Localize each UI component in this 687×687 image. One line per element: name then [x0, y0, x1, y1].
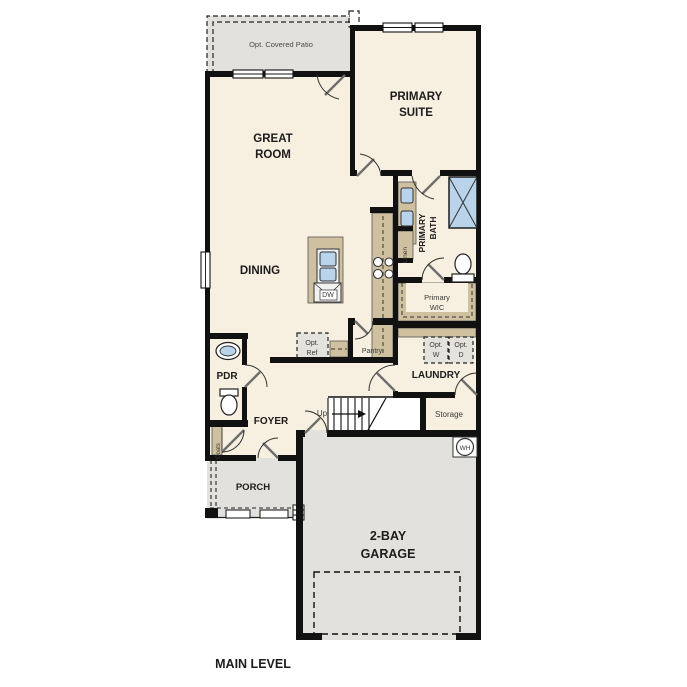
primary-suite-label-2: SUITE [399, 107, 433, 119]
primary-suite-label-1: PRIMARY [390, 91, 443, 103]
patio-label: Opt. Covered Patio [249, 40, 313, 49]
plan-title: MAIN LEVEL [215, 657, 291, 671]
primary-bath-label-2: BATH [428, 217, 438, 240]
laundry-label: LAUNDRY [412, 370, 461, 381]
dishwasher-label: DW [322, 292, 334, 299]
opt-dryer-label-1: Opt. [454, 342, 467, 349]
pdr-label: PDR [216, 371, 238, 382]
shower [449, 177, 477, 228]
great-room-label-2: ROOM [255, 149, 291, 161]
pdr-toilet [220, 389, 238, 415]
opt-washer-label-2: W [433, 352, 440, 359]
opt-dryer-label-2: D [458, 352, 463, 359]
opt-dryer-box [449, 337, 473, 363]
floorplan-canvas: Opt. Covered Patio PRIMARY SUITE GREAT R… [0, 0, 687, 687]
island-sink [317, 249, 339, 283]
porch-column [205, 508, 218, 518]
garage-label-2: GARAGE [361, 547, 416, 561]
water-heater-label: WH [460, 445, 471, 452]
primary-bath-label-1: PRIMARY [417, 213, 427, 252]
floorplan-drawing: Opt. Covered Patio PRIMARY SUITE GREAT R… [0, 0, 687, 687]
opt-ref-label-2: Ref [307, 350, 318, 357]
up-label: Up [317, 409, 328, 418]
foyer-label: FOYER [254, 416, 289, 427]
pdr-sink [216, 343, 240, 360]
pantry-label: Pantry [362, 348, 383, 355]
opt-ref-label-1: Opt. [305, 340, 318, 347]
wic-label-1: Primary [424, 293, 450, 302]
garage-label-1: 2-BAY [370, 529, 407, 543]
great-room-label-1: GREAT [253, 133, 292, 145]
staircase [328, 397, 420, 430]
wic-label-2: WIC [430, 303, 445, 312]
laundry-cabinet [398, 328, 476, 337]
dining-label: DINING [240, 265, 280, 277]
linen-label: Linen [402, 247, 409, 263]
storage-label: Storage [435, 410, 464, 419]
coats-label: Coats [216, 443, 222, 459]
opt-washer-box [424, 337, 448, 363]
opt-washer-label-1: Opt. [429, 342, 442, 349]
porch-label: PORCH [236, 482, 270, 493]
